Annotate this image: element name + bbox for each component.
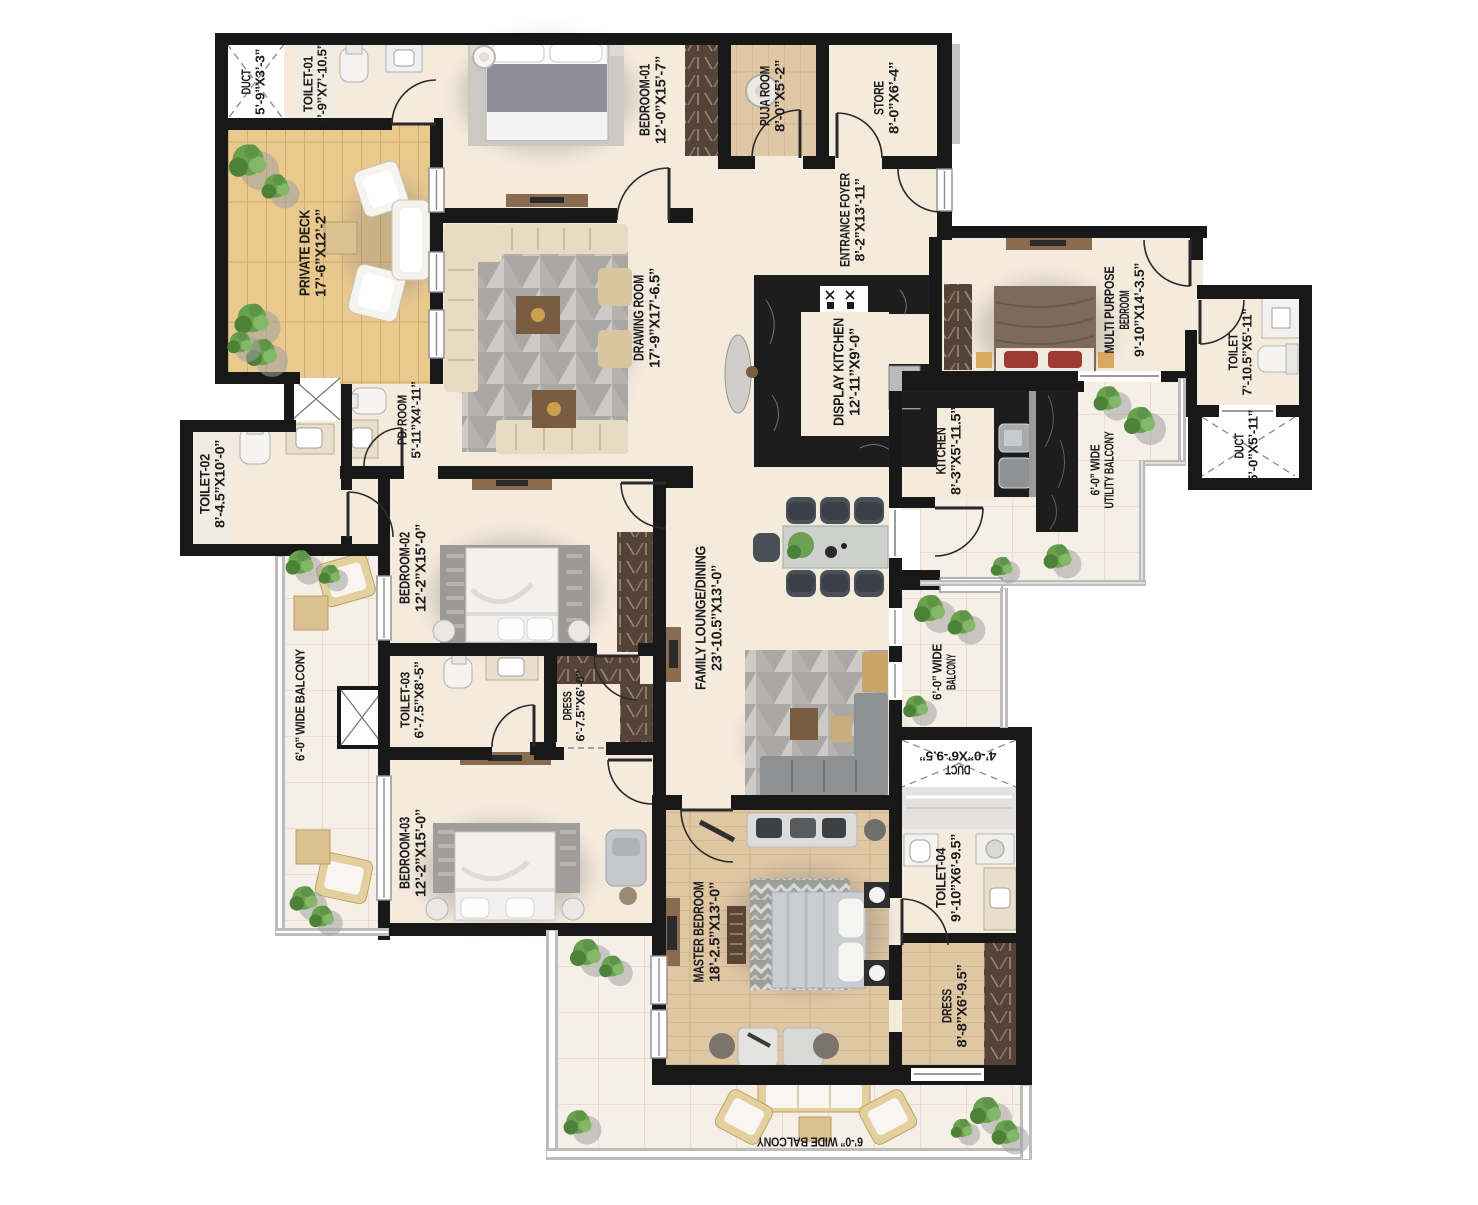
svg-text:17’-6’’X12’-2’’: 17’-6’’X12’-2’’ (312, 209, 329, 297)
svg-text:8’-8’’X6’-9.5’’: 8’-8’’X6’-9.5’’ (953, 965, 969, 1048)
svg-text:8’-4.5’’X10’-0’’: 8’-4.5’’X10’-0’’ (211, 440, 227, 528)
svg-text:6’-7.5’’X8’-5’’: 6’-7.5’’X8’-5’’ (412, 662, 427, 739)
svg-text:DUCT: DUCT (239, 69, 254, 94)
svg-text:DRESS: DRESS (938, 989, 954, 1023)
svg-text:12’-2’’X15’-0’’: 12’-2’’X15’-0’’ (412, 809, 429, 897)
svg-text:9’-10’’X14’-3.5’’: 9’-10’’X14’-3.5’’ (1131, 263, 1147, 357)
svg-text:PRIVATE DECK: PRIVATE DECK (296, 210, 313, 296)
svg-text:TOILET: TOILET (1226, 333, 1241, 370)
svg-text:DUCT: DUCT (1232, 433, 1247, 458)
svg-text:TOILET-01: TOILET-01 (301, 56, 316, 112)
svg-text:5’-11’’X4’-11’’: 5’-11’’X4’-11’’ (409, 382, 424, 459)
svg-text:UTILITY BALCONY: UTILITY BALCONY (1102, 431, 1117, 508)
svg-text:6’-0’’ WIDE: 6’-0’’ WIDE (930, 643, 945, 700)
svg-text:BEDROOM-01: BEDROOM-01 (636, 64, 653, 136)
svg-text:MASTER BEDROOM: MASTER BEDROOM (690, 882, 707, 983)
svg-text:6’-0’’ WIDE BALCONY: 6’-0’’ WIDE BALCONY (293, 648, 308, 761)
svg-text:KITCHEN: KITCHEN (932, 427, 948, 474)
svg-text:6’-7.5’’X6’-0’’: 6’-7.5’’X6’-0’’ (574, 671, 588, 742)
svg-text:23’-10.5’’X13’-0’’: 23’-10.5’’X13’-0’’ (708, 565, 725, 671)
svg-text:STORE: STORE (870, 81, 886, 115)
svg-text:7’-10.5’’X5’-11’’: 7’-10.5’’X5’-11’’ (1240, 309, 1255, 396)
svg-text:8’-0’’X5’-2’’: 8’-0’’X5’-2’’ (771, 60, 787, 132)
svg-text:4’-0’’X6’-9.5’’: 4’-0’’X6’-9.5’’ (920, 748, 997, 763)
svg-text:DRAWING ROOM: DRAWING ROOM (630, 275, 647, 361)
svg-text:TOILET-03: TOILET-03 (398, 672, 413, 728)
svg-text:8’-0’’X6’-4’’: 8’-0’’X6’-4’’ (885, 62, 901, 134)
svg-text:BEDROOM-02: BEDROOM-02 (396, 532, 413, 604)
svg-text:18’-2.5’’X13’-0’’: 18’-2.5’’X13’-0’’ (706, 882, 723, 982)
svg-text:PD. ROOM: PD. ROOM (395, 395, 410, 445)
svg-text:8’-3’’X5’-11.5’’: 8’-3’’X5’-11.5’’ (947, 407, 963, 495)
svg-text:ENTRANCE FOYER: ENTRANCE FOYER (836, 173, 852, 267)
svg-text:FAMILY LOUNGE/DINING: FAMILY LOUNGE/DINING (692, 546, 709, 690)
svg-text:DUCT: DUCT (945, 762, 970, 777)
svg-text:12’-2’’X15’-0’’: 12’-2’’X15’-0’’ (412, 524, 429, 612)
svg-text:5’-0’’X5’-11’’: 5’-0’’X5’-11’’ (1246, 410, 1261, 482)
svg-text:TOILET-04: TOILET-04 (932, 848, 948, 908)
svg-text:9’-10’’X6’-9.5’’: 9’-10’’X6’-9.5’’ (947, 834, 963, 922)
svg-text:17’-9’’X17’-6.5’’: 17’-9’’X17’-6.5’’ (646, 268, 663, 368)
svg-text:MULTI PURPOSE: MULTI PURPOSE (1101, 267, 1117, 354)
svg-text:5’-9’’X3’-3’’: 5’-9’’X3’-3’’ (253, 49, 268, 115)
svg-text:6’-0” WIDE BALCONY: 6’-0” WIDE BALCONY (756, 1134, 863, 1149)
svg-text:12’-0’’X15’-7’’: 12’-0’’X15’-7’’ (652, 56, 669, 144)
svg-text:8’-2’’X13’-11’’: 8’-2’’X13’-11’’ (851, 179, 867, 262)
svg-text:5’-9’’X7’-10.5’’: 5’-9’’X7’-10.5’’ (315, 43, 330, 125)
svg-text:BEDROOM-03: BEDROOM-03 (396, 817, 413, 889)
svg-text:PUJA ROOM: PUJA ROOM (756, 66, 772, 126)
svg-text:6’-0” WIDE: 6’-0” WIDE (1088, 444, 1103, 495)
svg-text:DRESS: DRESS (561, 691, 575, 720)
svg-text:DISPLAY KITCHEN: DISPLAY KITCHEN (830, 318, 847, 426)
svg-text:BALCONY: BALCONY (944, 654, 959, 690)
svg-text:BEDROOM: BEDROOM (1116, 291, 1132, 330)
svg-text:TOILET-02: TOILET-02 (196, 454, 212, 514)
svg-text:12’-11’’X9’-0’’: 12’-11’’X9’-0’’ (846, 328, 863, 416)
